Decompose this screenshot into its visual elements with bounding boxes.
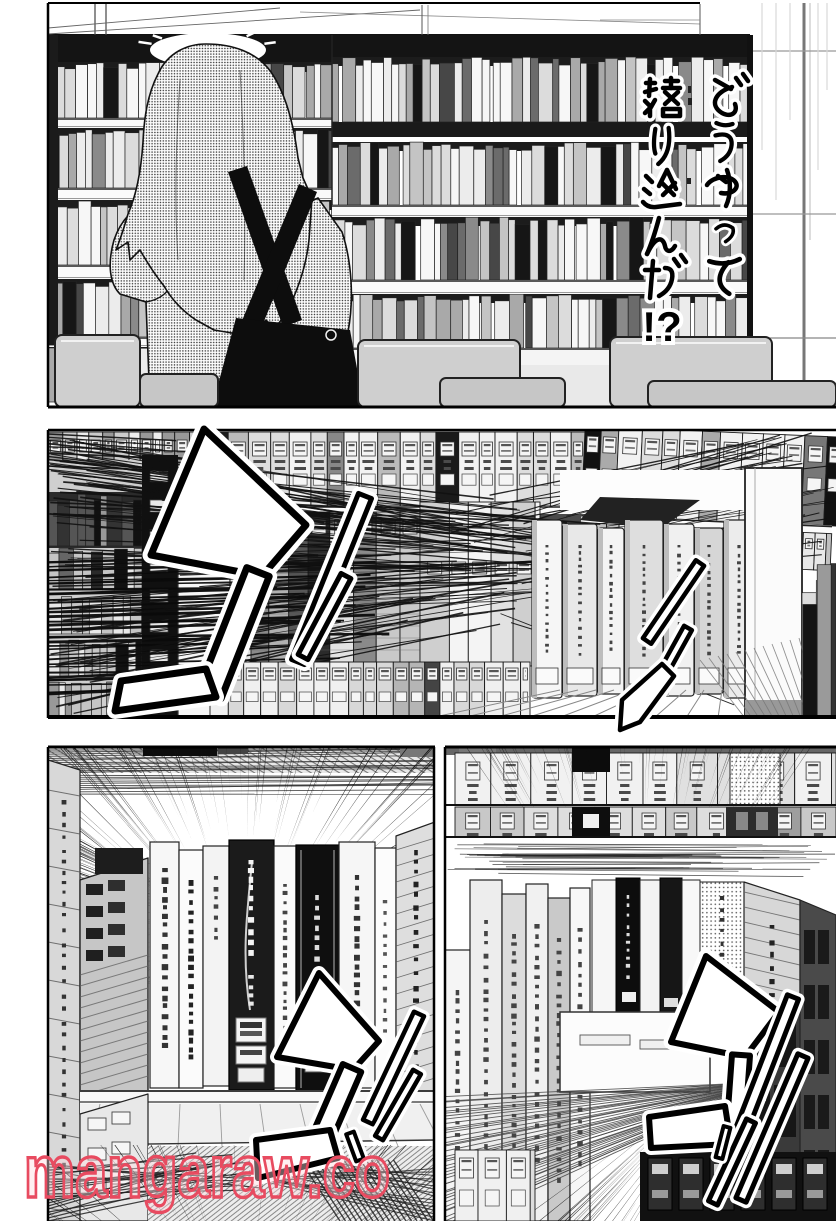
svg-text:mangaraw.co: mangaraw.co	[24, 1130, 390, 1213]
svg-text:!?: !?	[642, 303, 682, 350]
